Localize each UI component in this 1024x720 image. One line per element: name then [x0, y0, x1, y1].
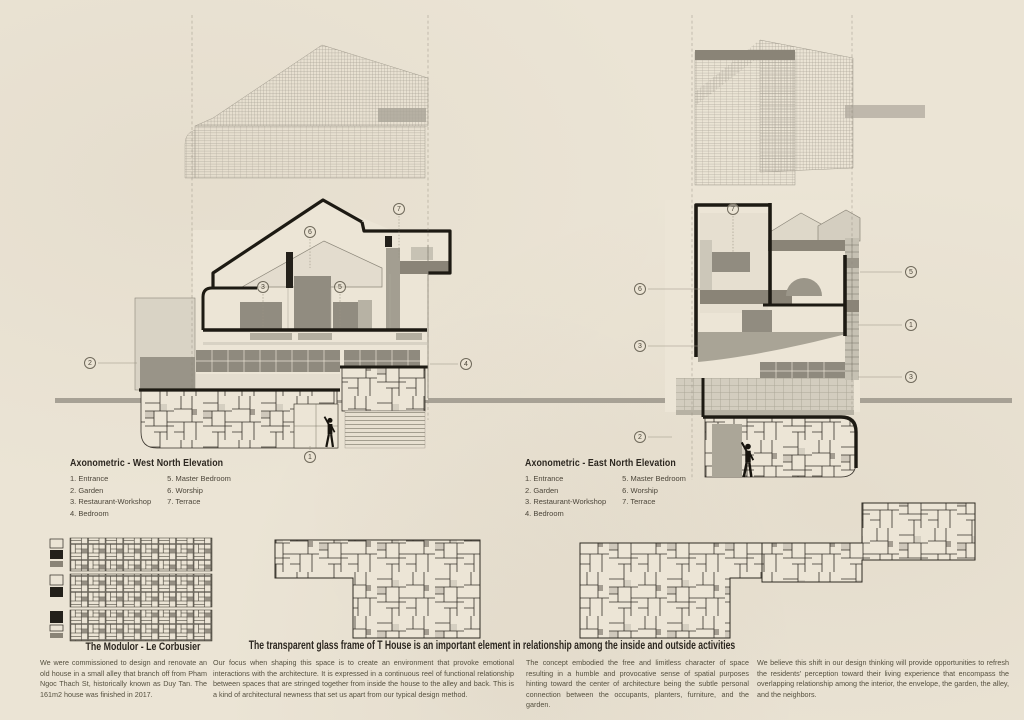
callout-garden-west: 2: [84, 357, 96, 369]
legend-item: 3. Restaurant-Workshop: [70, 497, 151, 508]
legend-item: 6. Worship: [622, 486, 686, 497]
modulor-paragraph: We were commissioned to design and renov…: [40, 658, 207, 700]
legend-east: Axonometric - East North Elevation 1. En…: [525, 457, 705, 519]
modulor-title: The Modulor - Le Corbusier: [67, 641, 219, 653]
west-elevation-drawing: [135, 200, 450, 448]
callout-worship-west: 6: [304, 226, 316, 238]
east-roof-wireframe-drawing: [695, 40, 925, 185]
mosaic-pattern-panels: [275, 503, 975, 638]
callout-master-bedroom-west: 5: [334, 281, 346, 293]
legend-item: 1. Entrance: [525, 474, 606, 485]
callout-entrance-east: 1: [905, 319, 917, 331]
board-graphics: [0, 0, 1024, 720]
callout-terrace-west: 7: [393, 203, 405, 215]
statement-title: The transparent glass frame of T House i…: [237, 640, 747, 652]
legend-item: 5. Master Bedroom: [167, 474, 231, 485]
legend-item: 5. Master Bedroom: [622, 474, 686, 485]
legend-item: 4. Bedroom: [525, 509, 606, 520]
callout-garden-east: 2: [634, 431, 646, 443]
legend-item: 3. Restaurant-Workshop: [525, 497, 606, 508]
callout-worship-east: 6: [634, 283, 646, 295]
callout-restaurant-east-left: 3: [634, 340, 646, 352]
callout-restaurant-west: 3: [257, 281, 269, 293]
legend-item: 7. Terrace: [167, 497, 231, 508]
callout-bedroom-west: 4: [460, 358, 472, 370]
callout-master-bedroom-east: 5: [905, 266, 917, 278]
legend-item: 2. Garden: [70, 486, 151, 497]
legend-east-title: Axonometric - East North Elevation: [525, 457, 676, 469]
legend-item: 7. Terrace: [622, 497, 686, 508]
legend-item: 1. Entrance: [70, 474, 151, 485]
legend-item: 4. Bedroom: [70, 509, 151, 520]
statement-col2: The concept embodied the free and limitl…: [526, 658, 749, 711]
callout-terrace-east: 7: [727, 203, 739, 215]
callout-restaurant-east-right: 3: [905, 371, 917, 383]
legend-item: 2. Garden: [525, 486, 606, 497]
presentation-board: 1 2 3 4 5 6 7 7 6 5 1 3 3 2 Axonometric …: [0, 0, 1024, 720]
modulor-tile-studies: [50, 538, 212, 641]
west-roof-wireframe-drawing: [185, 45, 428, 178]
legend-item: 6. Worship: [167, 486, 231, 497]
legend-west-title: Axonometric - West North Elevation: [70, 457, 223, 469]
callout-entrance-west: 1: [304, 451, 316, 463]
legend-west: Axonometric - West North Elevation 1. En…: [70, 457, 252, 519]
east-elevation-drawing: [665, 200, 860, 477]
statement-col3: We believe this shift in our design thin…: [757, 658, 1009, 700]
statement-col1: Our focus when shaping this space is to …: [213, 658, 514, 700]
